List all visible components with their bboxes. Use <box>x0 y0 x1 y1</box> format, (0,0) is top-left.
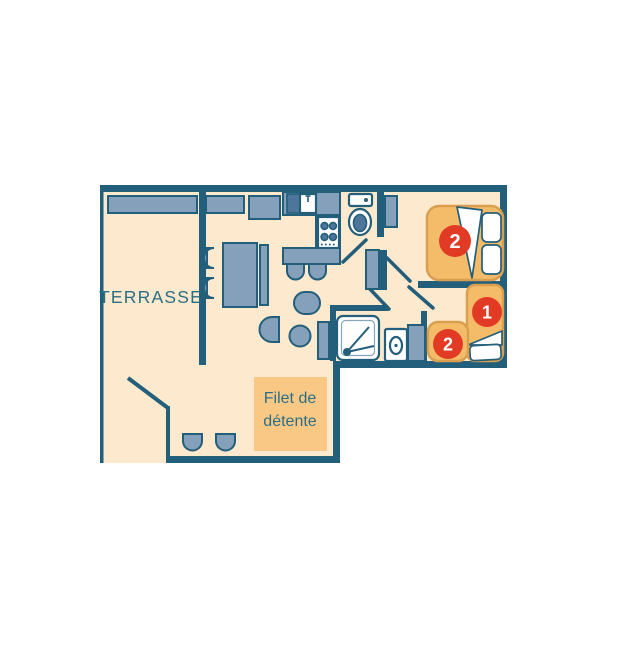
kitchen-cabinet-icon <box>206 196 244 213</box>
dining-bench <box>260 245 268 305</box>
pullout-bed-badge: 2 <box>433 329 463 359</box>
wall-hall-stub <box>380 250 387 290</box>
cabinet-icon <box>318 322 329 359</box>
wardrobe-icon <box>408 325 425 361</box>
bar-stool-icon <box>309 264 326 280</box>
pillow-icon <box>482 245 501 274</box>
floor-plan-canvas: 2 1 2 Filet de détente TERRASSE <box>0 0 617 654</box>
double-bed-badge: 2 <box>439 225 471 257</box>
relax-net-label-line2: détente <box>263 413 316 430</box>
wall-relax-room-right <box>333 368 340 463</box>
shower-icon <box>337 316 379 360</box>
terrace-bench <box>108 196 197 213</box>
wardrobe-icon <box>385 196 397 227</box>
floor-plan: 2 1 2 Filet de détente TERRASSE <box>0 0 617 654</box>
wall-top <box>100 185 507 192</box>
single-bed-badge: 1 <box>472 297 502 327</box>
bar-counter <box>283 248 340 264</box>
armchair-icon <box>294 292 320 314</box>
stove-icon <box>318 217 339 248</box>
wall-terrace-divider <box>199 192 206 365</box>
washing-machine-icon <box>385 329 407 361</box>
wall-terrace-left <box>100 192 104 463</box>
floor-stool-icon <box>216 434 235 451</box>
wall-bathroom-top <box>330 305 388 311</box>
kitchen-cabinet-icon <box>249 196 280 219</box>
wall-wc-right <box>377 192 384 237</box>
pillow-icon <box>470 344 502 361</box>
pullout-bed-count: 2 <box>443 335 453 355</box>
kitchen-sink-icon <box>287 194 300 213</box>
wall-bathroom-left <box>330 311 336 361</box>
wall-relax-room-left <box>166 406 170 458</box>
single-bed-count: 1 <box>482 303 492 323</box>
pillow-icon <box>482 213 501 242</box>
dining-table <box>223 243 257 307</box>
wall-relax-room-bottom <box>166 456 340 463</box>
wardrobe-icon <box>366 250 379 289</box>
armchair-icon <box>260 317 280 342</box>
floor-stool-icon <box>183 434 202 451</box>
relax-net-label-line1: Filet de <box>264 390 317 407</box>
double-bed-count: 2 <box>449 231 460 253</box>
pouf-icon <box>290 326 311 347</box>
terrace-label: TERRASSE <box>99 287 203 307</box>
toilet-icon <box>349 194 372 235</box>
bar-stool-icon <box>287 264 304 280</box>
